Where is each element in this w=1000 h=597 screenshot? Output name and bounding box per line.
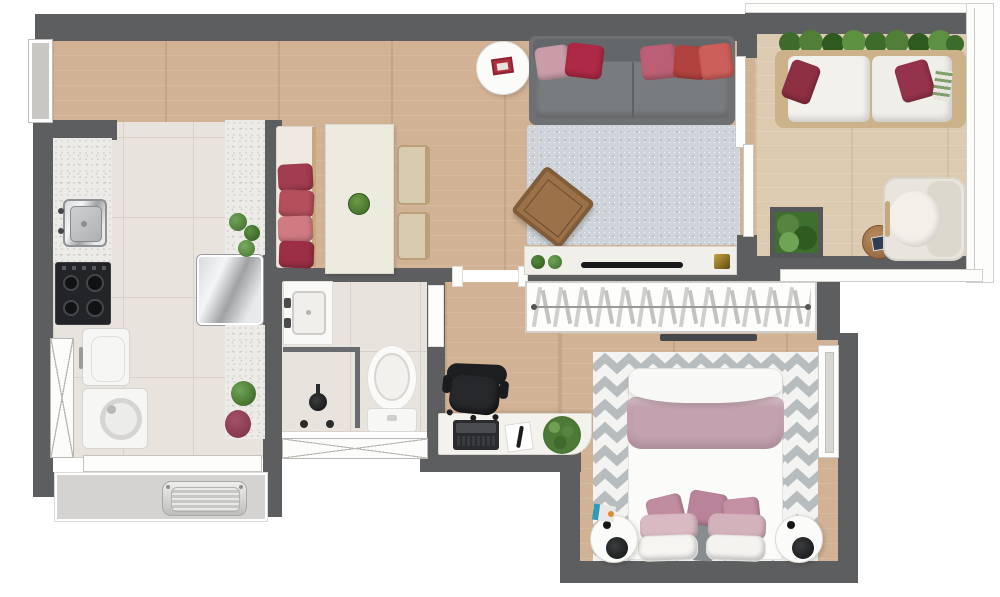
console-plant (548, 255, 562, 269)
wardrobe-clothes (531, 284, 811, 330)
console-decor (714, 254, 730, 269)
counter-plant (231, 381, 256, 406)
ac-bolt (166, 485, 170, 489)
washer-door-hinge (107, 405, 116, 414)
dining-chair (397, 212, 430, 260)
chair-wheel (492, 414, 499, 421)
balcony-armchair (883, 177, 966, 261)
basin-faucet (284, 318, 291, 328)
side-table-book (491, 57, 514, 76)
dining-table (325, 124, 394, 274)
balcony-planter (770, 207, 823, 258)
window-pane (825, 352, 834, 453)
table-bowl (348, 193, 370, 215)
window-service (50, 338, 74, 458)
tv-console (524, 246, 737, 275)
desk (438, 413, 592, 455)
nightstand-book (592, 504, 616, 523)
chair-seat (448, 373, 502, 416)
laundry-sink (82, 328, 130, 386)
railing-inner-line (974, 8, 975, 276)
laptop-keys (457, 436, 495, 446)
balcony-railing-top (745, 3, 993, 13)
kitchen-sink (63, 199, 107, 247)
bench-pillow (277, 163, 313, 192)
window-left (29, 40, 52, 122)
washer-drum (100, 398, 142, 440)
door-jamb-left (452, 266, 463, 287)
bed-blanket (627, 397, 784, 449)
lamp-right-arm (787, 521, 795, 529)
laundry-sink-handle (79, 347, 83, 369)
office-chair (440, 361, 511, 424)
pen (516, 426, 524, 448)
lamp-left (606, 537, 628, 559)
bed-pillow-white (638, 534, 699, 562)
toilet (367, 345, 417, 433)
window-bathroom (282, 438, 428, 459)
counter-plant (238, 240, 255, 257)
console-plant (531, 255, 545, 269)
book-dot (608, 511, 615, 518)
wardrobe-shelf (660, 334, 757, 341)
wall-bedroom-right (838, 333, 858, 583)
sofa-seam (632, 62, 634, 118)
bathroom-door-opening (428, 285, 444, 347)
laptop (453, 420, 499, 450)
planter-foliage (779, 232, 799, 252)
armchair-trim (885, 201, 890, 237)
bench-pillow (278, 189, 314, 218)
book-page (497, 62, 509, 70)
stove-knobs (62, 266, 106, 270)
bed-pillow-white (706, 534, 767, 562)
wall-balcony-divider-top (737, 14, 757, 58)
sofa-pillow (698, 42, 735, 81)
window-band-kitchen (83, 455, 262, 472)
stove (55, 262, 111, 325)
washbasin-counter (283, 281, 333, 345)
counter-plant (244, 225, 260, 241)
balcony-railing-right (966, 3, 994, 283)
refrigerator (197, 255, 263, 325)
basin-drain (306, 310, 311, 315)
bench-pillow (278, 215, 314, 242)
chair-armrest (498, 380, 509, 399)
chair-wheel (446, 409, 453, 416)
burner (63, 300, 79, 316)
sliding-door-panel-2 (743, 144, 754, 237)
laptop-screen (456, 423, 496, 433)
sofa-pillow (564, 42, 605, 80)
ac-unit-vent (171, 487, 240, 512)
burner (86, 274, 104, 292)
burner (63, 275, 79, 291)
notebook (504, 421, 534, 452)
wall-balcony-divider-bottom (737, 235, 757, 262)
ac-unit (162, 481, 247, 516)
ac-bolt (239, 485, 243, 489)
lamp-left-arm (603, 521, 611, 529)
lamp-right (792, 537, 814, 559)
chair-wheel (470, 415, 477, 422)
shower-control (326, 420, 334, 428)
shower-divider-v (355, 347, 360, 428)
washing-machine (82, 388, 148, 449)
counter-plant-red (225, 410, 251, 438)
shower-control (300, 420, 308, 428)
desk-plant (543, 416, 581, 454)
toilet-flush-button (387, 415, 397, 421)
sliding-door-panel-1 (735, 56, 746, 148)
wall-bedroom-bottom (560, 561, 858, 583)
sink-drain (81, 221, 87, 227)
shower-divider-h (283, 347, 358, 352)
tv (581, 262, 683, 268)
bench-pillow (279, 240, 315, 268)
basin-faucet (284, 298, 291, 308)
toilet-seat (374, 353, 410, 401)
sink-faucet (58, 228, 64, 234)
armchair-seat (889, 191, 941, 247)
bed-duvet-fold (629, 369, 782, 403)
burner (86, 299, 104, 317)
floor-plan (0, 0, 1000, 597)
sink-faucet (58, 208, 64, 214)
dining-chair (397, 145, 430, 205)
window-bedroom (818, 345, 839, 458)
wall-under-desk (420, 452, 581, 472)
laundry-sink-basin (91, 336, 125, 382)
shower-head (309, 393, 327, 411)
wall-kitchen-stub (53, 120, 117, 140)
